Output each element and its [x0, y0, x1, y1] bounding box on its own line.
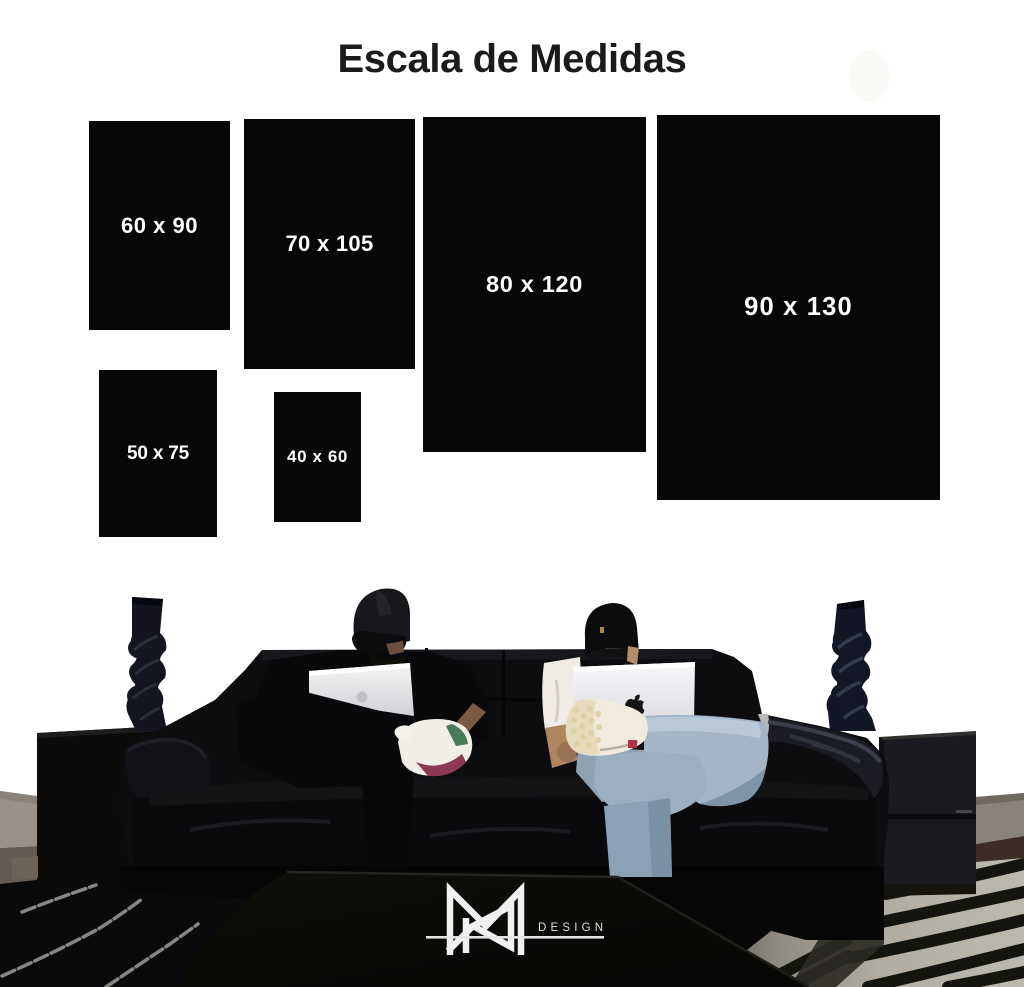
svg-text:DESIGN: DESIGN [538, 922, 607, 934]
